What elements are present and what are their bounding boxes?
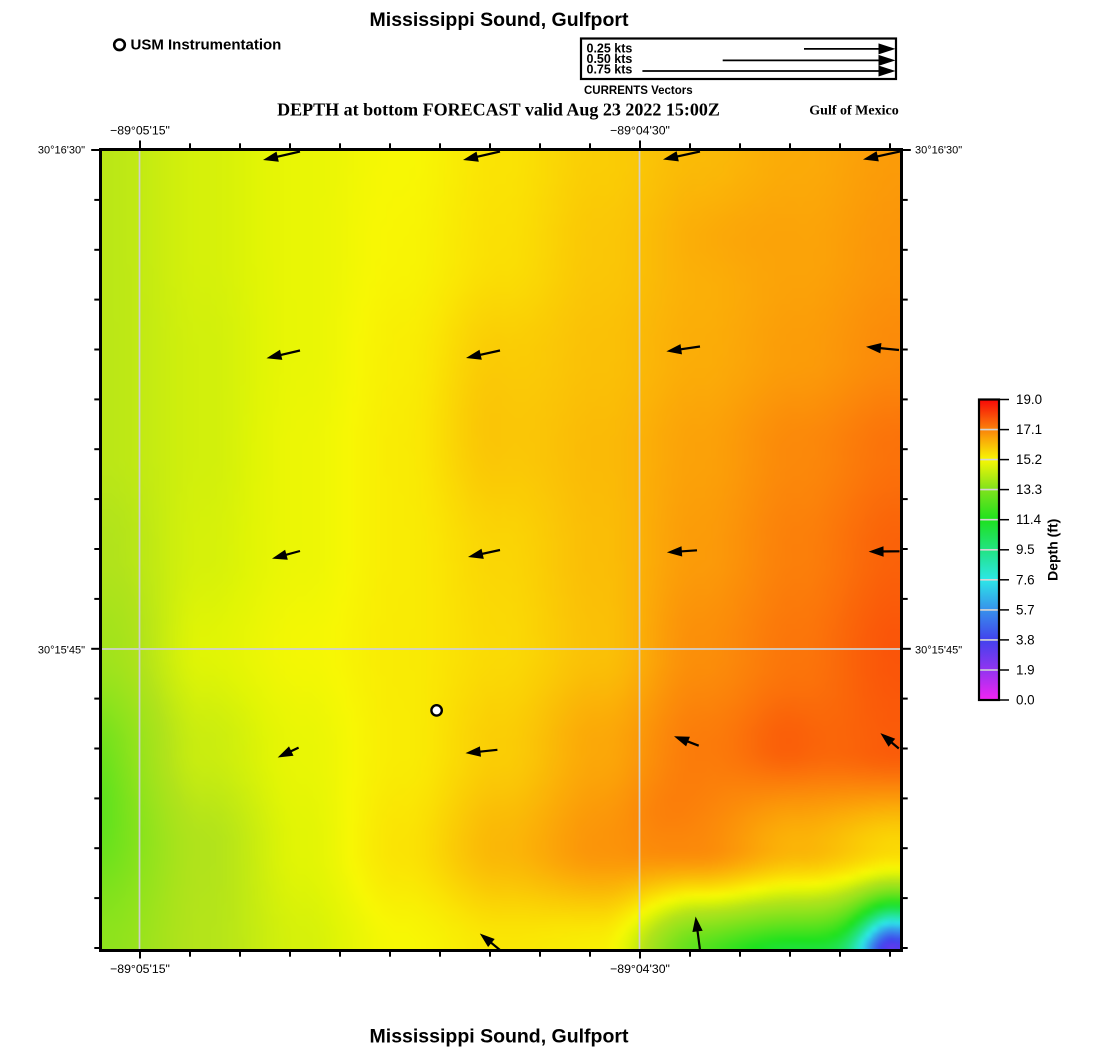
svg-text:−89°05'15": −89°05'15" (110, 124, 170, 138)
svg-text:11.4: 11.4 (1016, 512, 1042, 527)
svg-text:−89°04'30": −89°04'30" (610, 124, 670, 138)
svg-text:Mississippi Sound, Gulfport: Mississippi Sound, Gulfport (370, 9, 629, 31)
svg-text:CURRENTS Vectors: CURRENTS Vectors (584, 85, 693, 97)
svg-text:0.0: 0.0 (1016, 693, 1035, 708)
svg-text:DEPTH at bottom FORECAST valid: DEPTH at bottom FORECAST valid Aug 23 20… (277, 100, 720, 120)
svg-text:Gulf of Mexico: Gulf of Mexico (809, 103, 898, 118)
svg-text:30°16'30": 30°16'30" (915, 145, 962, 157)
svg-text:30°15'45": 30°15'45" (38, 644, 85, 656)
svg-text:30°15'45": 30°15'45" (915, 644, 962, 656)
svg-text:7.6: 7.6 (1016, 572, 1035, 587)
svg-text:5.7: 5.7 (1016, 602, 1035, 617)
svg-text:−89°05'15": −89°05'15" (110, 962, 170, 976)
svg-text:USM Instrumentation: USM Instrumentation (131, 37, 282, 54)
svg-text:3.8: 3.8 (1016, 632, 1035, 647)
svg-text:9.5: 9.5 (1016, 542, 1035, 557)
svg-text:−89°04'30": −89°04'30" (610, 962, 670, 976)
svg-text:Depth (ft): Depth (ft) (1045, 519, 1061, 581)
svg-text:Mississippi Sound, Gulfport: Mississippi Sound, Gulfport (370, 1026, 629, 1048)
svg-text:17.1: 17.1 (1016, 422, 1042, 437)
svg-text:13.3: 13.3 (1016, 482, 1042, 497)
svg-text:30°16'30": 30°16'30" (38, 145, 85, 157)
svg-text:0.75 kts: 0.75 kts (587, 62, 633, 76)
svg-text:1.9: 1.9 (1016, 663, 1035, 678)
svg-text:19.0: 19.0 (1016, 392, 1042, 407)
svg-text:15.2: 15.2 (1016, 452, 1042, 467)
